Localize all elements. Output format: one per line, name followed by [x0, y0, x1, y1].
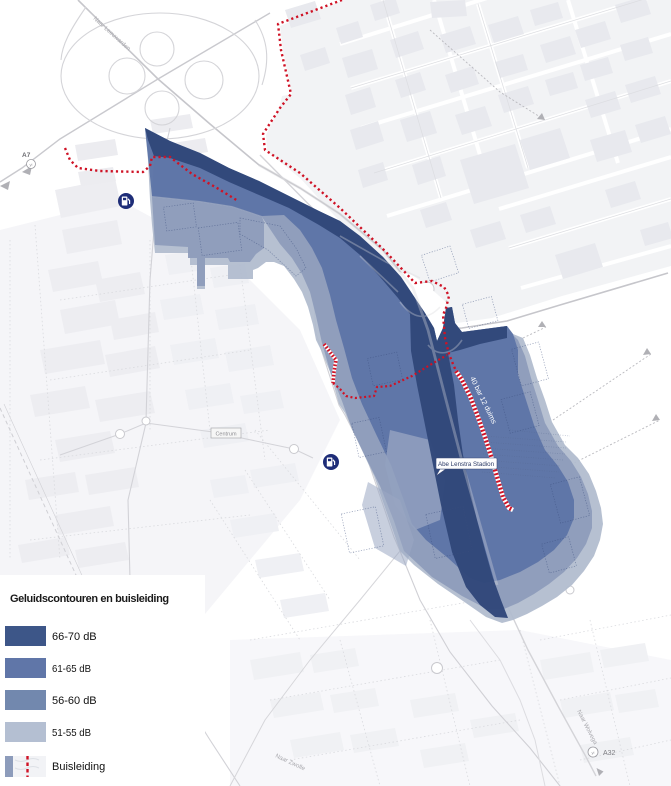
svg-text:yl: yl — [30, 162, 33, 167]
svg-text:yl: yl — [592, 750, 595, 755]
svg-text:61-65 dB: 61-65 dB — [52, 663, 91, 675]
svg-text:51-55 dB: 51-55 dB — [52, 727, 91, 739]
svg-text:56-60 dB: 56-60 dB — [52, 695, 97, 707]
svg-text:Centrum: Centrum — [215, 432, 237, 438]
svg-text:Abe Lenstra Stadion: Abe Lenstra Stadion — [438, 461, 495, 468]
svg-text:66-70 dB: 66-70 dB — [52, 631, 97, 643]
svg-text:A7: A7 — [22, 152, 31, 159]
svg-text:Buisleiding: Buisleiding — [52, 761, 105, 773]
svg-text:A32: A32 — [603, 750, 616, 757]
svg-text:Geluidscontouren en buisleidin: Geluidscontouren en buisleiding — [10, 593, 169, 605]
